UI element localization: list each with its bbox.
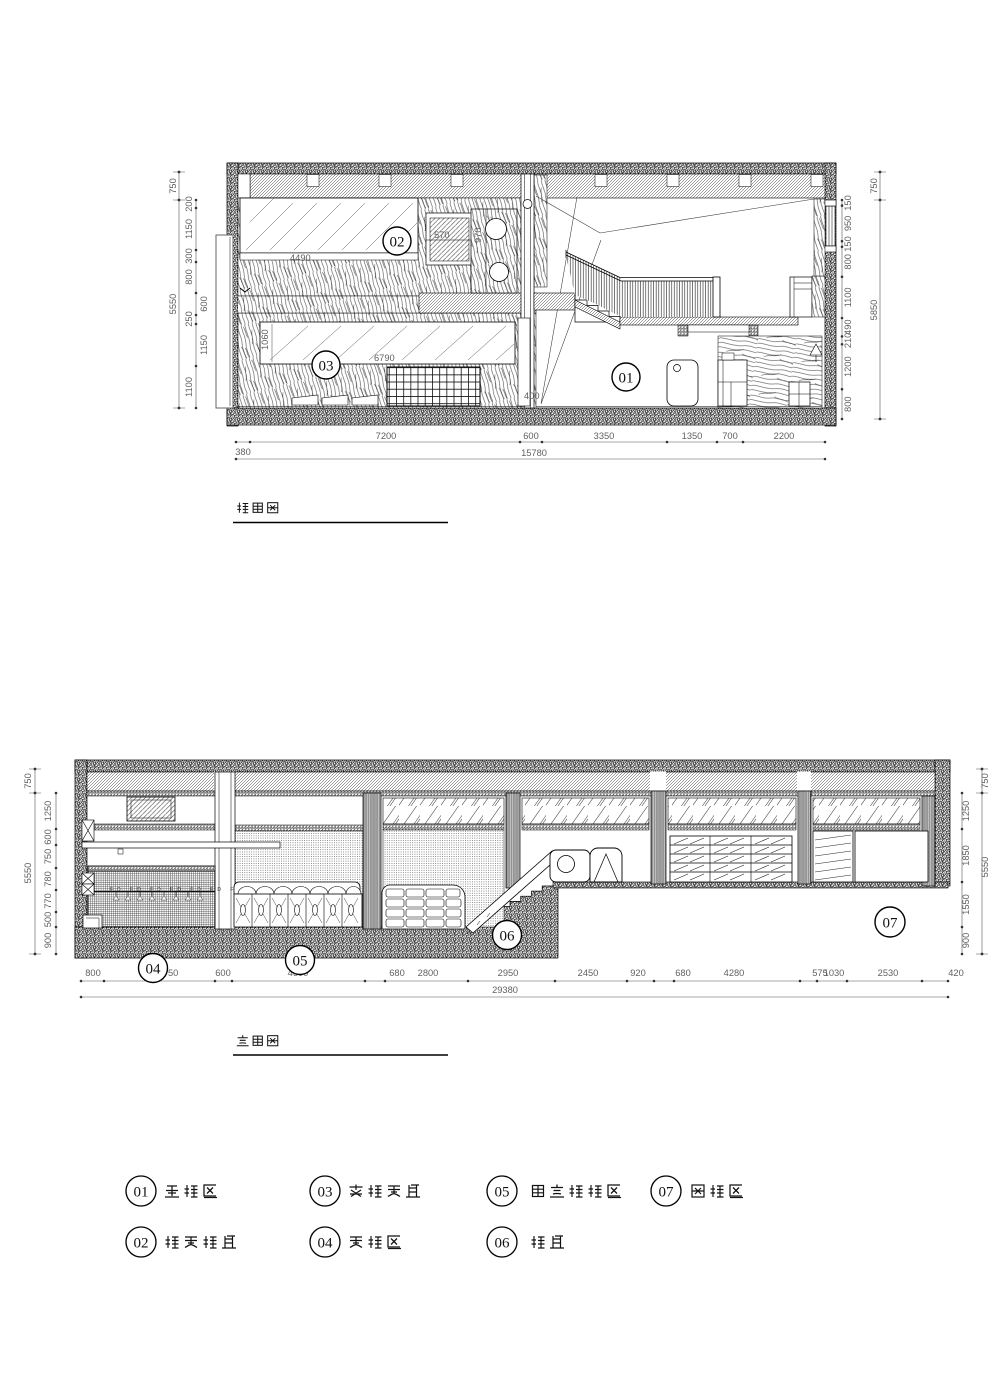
svg-text:03: 03: [319, 359, 334, 375]
svg-text:150: 150: [843, 236, 853, 252]
svg-text:1100: 1100: [184, 377, 194, 397]
svg-text:750: 750: [43, 849, 53, 865]
svg-text:250: 250: [184, 311, 194, 327]
svg-text:4490: 4490: [290, 253, 311, 263]
svg-text:05: 05: [495, 1185, 510, 1201]
svg-text:600: 600: [199, 296, 209, 312]
svg-text:07: 07: [659, 1185, 675, 1201]
svg-text:5550: 5550: [168, 294, 178, 315]
svg-text:950: 950: [843, 216, 853, 232]
svg-text:02: 02: [390, 235, 405, 251]
svg-text:07: 07: [883, 916, 899, 932]
svg-text:600: 600: [215, 968, 231, 978]
svg-text:03: 03: [318, 1185, 333, 1201]
svg-text:7200: 7200: [376, 431, 397, 441]
svg-text:02: 02: [134, 1236, 149, 1252]
svg-text:5550: 5550: [23, 863, 33, 884]
svg-text:900: 900: [961, 933, 971, 949]
svg-text:600: 600: [523, 431, 539, 441]
svg-text:1850: 1850: [961, 845, 971, 866]
svg-text:1250: 1250: [43, 801, 53, 822]
svg-text:2950: 2950: [498, 968, 519, 978]
svg-text:1030: 1030: [824, 968, 845, 978]
svg-text:380: 380: [235, 447, 251, 457]
svg-text:04: 04: [318, 1236, 334, 1252]
svg-text:770: 770: [43, 893, 53, 909]
svg-text:750: 750: [168, 178, 178, 194]
svg-text:400: 400: [524, 391, 540, 401]
svg-text:800: 800: [843, 254, 853, 270]
svg-text:5550: 5550: [980, 857, 990, 878]
svg-text:750: 750: [23, 773, 33, 789]
svg-text:970: 970: [473, 227, 483, 243]
svg-text:200: 200: [184, 196, 194, 212]
svg-text:300: 300: [184, 248, 194, 264]
svg-text:920: 920: [630, 968, 646, 978]
svg-text:2200: 2200: [774, 431, 795, 441]
svg-text:4280: 4280: [724, 968, 745, 978]
svg-text:800: 800: [184, 269, 194, 285]
svg-text:900: 900: [43, 933, 53, 949]
svg-text:700: 700: [722, 431, 738, 441]
svg-text:150: 150: [843, 195, 853, 211]
svg-text:1060: 1060: [260, 329, 270, 350]
svg-text:1350: 1350: [682, 431, 703, 441]
svg-text:04: 04: [146, 962, 162, 978]
svg-text:5850: 5850: [869, 300, 879, 321]
svg-text:1100: 1100: [843, 287, 853, 307]
svg-text:1150: 1150: [199, 335, 209, 355]
svg-text:500: 500: [43, 912, 53, 928]
svg-text:3350: 3350: [594, 431, 615, 441]
svg-text:2450: 2450: [578, 968, 599, 978]
svg-text:1250: 1250: [961, 801, 971, 822]
svg-text:01: 01: [619, 371, 634, 387]
svg-text:15780: 15780: [521, 448, 547, 458]
svg-text:800: 800: [843, 396, 853, 412]
svg-text:2800: 2800: [418, 968, 439, 978]
svg-text:06: 06: [495, 1236, 511, 1252]
svg-text:420: 420: [948, 968, 964, 978]
svg-text:780: 780: [43, 871, 53, 887]
svg-text:FD FD FD FD FD FD FD: FD FD FD FD FD FD FD: [110, 887, 245, 893]
svg-text:1150: 1150: [184, 219, 194, 239]
svg-text:210: 210: [843, 333, 853, 349]
svg-text:05: 05: [293, 954, 308, 970]
svg-text:06: 06: [500, 929, 516, 945]
svg-text:6790: 6790: [374, 353, 395, 363]
svg-text:1550: 1550: [961, 894, 971, 915]
svg-text:29380: 29380: [492, 985, 518, 995]
svg-text:1200: 1200: [843, 356, 853, 377]
svg-text:750: 750: [869, 178, 879, 194]
svg-text:570: 570: [434, 230, 450, 240]
svg-text:680: 680: [675, 968, 691, 978]
svg-text:750: 750: [980, 773, 990, 789]
svg-text:800: 800: [85, 968, 101, 978]
svg-text:600: 600: [43, 829, 53, 845]
svg-text:01: 01: [134, 1185, 149, 1201]
svg-text:2530: 2530: [878, 968, 899, 978]
svg-text:490: 490: [843, 319, 853, 335]
svg-text:680: 680: [389, 968, 405, 978]
